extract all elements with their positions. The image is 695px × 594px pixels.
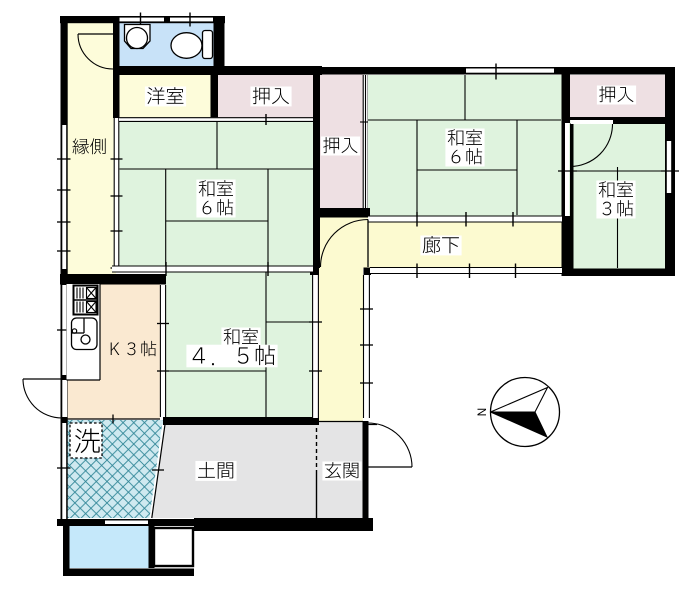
svg-text:N: N bbox=[475, 408, 489, 417]
